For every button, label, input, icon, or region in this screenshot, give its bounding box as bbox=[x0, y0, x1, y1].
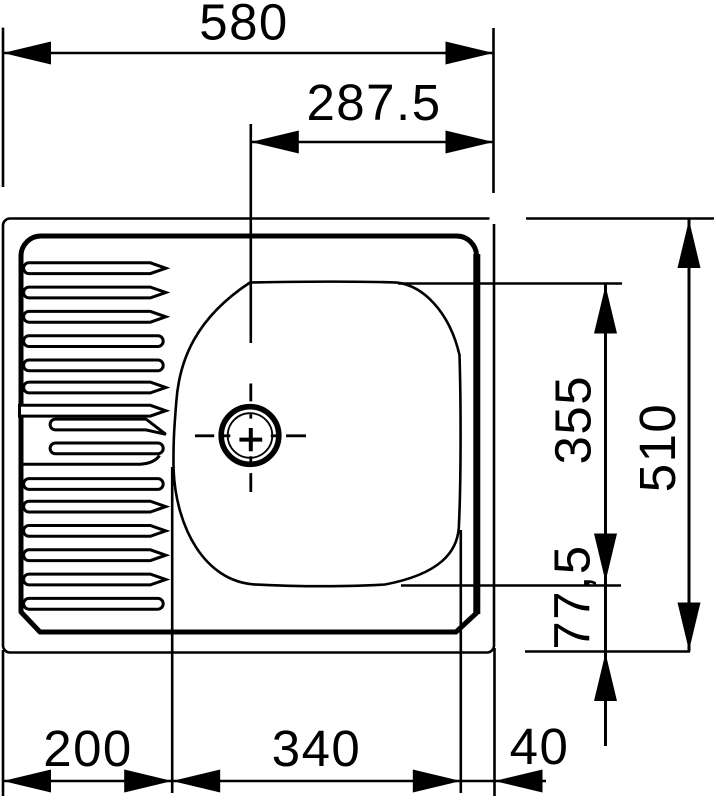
svg-text:77,5: 77,5 bbox=[544, 544, 601, 649]
svg-text:200: 200 bbox=[43, 720, 133, 777]
svg-text:355: 355 bbox=[545, 375, 602, 465]
svg-text:40: 40 bbox=[510, 718, 570, 775]
svg-text:287.5: 287.5 bbox=[306, 74, 441, 131]
svg-text:340: 340 bbox=[272, 720, 362, 777]
svg-text:510: 510 bbox=[629, 403, 686, 493]
svg-text:580: 580 bbox=[199, 0, 289, 51]
